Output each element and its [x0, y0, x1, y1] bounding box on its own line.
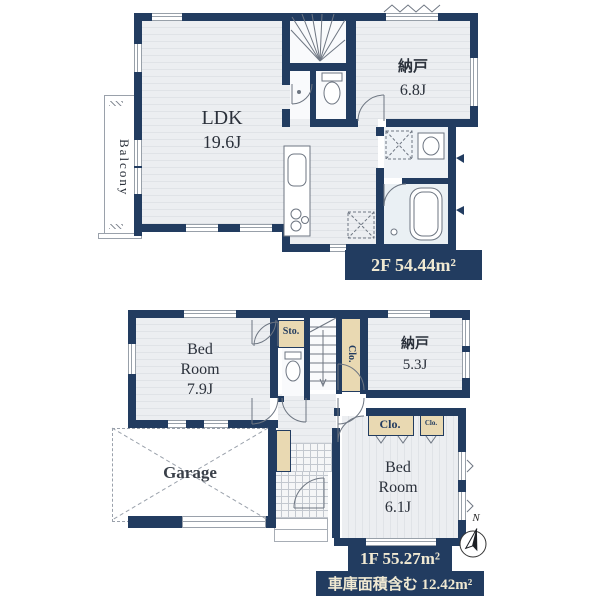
ldk-label: LDK 19.6J — [172, 106, 272, 154]
toilet-1f-door-arc — [282, 398, 306, 422]
toilet-2f-icon — [322, 73, 342, 104]
garage-label: Garage — [140, 462, 240, 483]
nando-1f-size: 5.3J — [375, 356, 455, 375]
washbasin-icon — [292, 84, 312, 104]
stairs-1f-icon — [310, 318, 336, 386]
compass-north-label: N — [468, 512, 484, 524]
bathtub-icon — [391, 188, 442, 240]
bathroom-door-arc — [384, 184, 406, 206]
area-label-1f: 1F 55.27m² — [348, 546, 452, 571]
refrigerator-icon — [348, 212, 374, 238]
closet-wide-label: Clo. — [368, 417, 412, 432]
door-flag-icons — [456, 154, 464, 215]
bedroom1-name: Bed Room — [166, 340, 234, 380]
fixtures-linework — [0, 0, 600, 600]
closet-small-label: Clo. — [420, 419, 442, 427]
floorplan-canvas: LDK 19.6J 納戸 6.8J Balcony Bed Room 7.9J … — [0, 0, 600, 600]
bedroom1-label: Bed Room 7.9J — [166, 340, 234, 400]
front-door-arc — [294, 478, 324, 508]
nando-2f-label: 納戸 6.8J — [368, 58, 458, 101]
bedroom2-label: Bed Room 6.1J — [364, 458, 432, 518]
ldk-name: LDK — [172, 106, 272, 131]
nando-1f-name: 納戸 — [375, 336, 455, 354]
storage-label: Sto. — [278, 326, 304, 337]
nando-2f-size: 6.8J — [368, 81, 458, 101]
kitchen-counter-icon — [284, 146, 310, 236]
eave-zigzag — [384, 5, 440, 12]
compass-icon — [460, 527, 486, 557]
bedroom2-name: Bed Room — [364, 458, 432, 498]
nando-2f-name: 納戸 — [368, 58, 458, 77]
balcony-label: Balcony — [108, 120, 132, 216]
washing-machine-icon — [386, 131, 412, 159]
bedroom2-size: 6.1J — [364, 498, 432, 518]
closet-tall-label: Clo. — [343, 332, 357, 376]
washroom-sink-icon — [418, 133, 444, 159]
area-label-2f: 2F 54.44m² — [345, 250, 482, 280]
bedroom2-door-arc — [338, 416, 364, 442]
closet-hanger-marks — [376, 436, 436, 443]
bedroom2-window-chevrons — [467, 460, 473, 512]
ldk-size: 19.6J — [172, 131, 272, 154]
nando-1f-label: 納戸 5.3J — [375, 336, 455, 374]
bedroom1-door-arc — [252, 398, 278, 424]
bedroom1-size: 7.9J — [166, 380, 234, 400]
stairs-2f-icon — [291, 14, 345, 61]
bedroom1-closet-doors — [252, 320, 278, 346]
garage-area-label: 車庫面積含む 12.42m² — [316, 571, 484, 596]
toilet-1f-icon — [285, 352, 301, 381]
